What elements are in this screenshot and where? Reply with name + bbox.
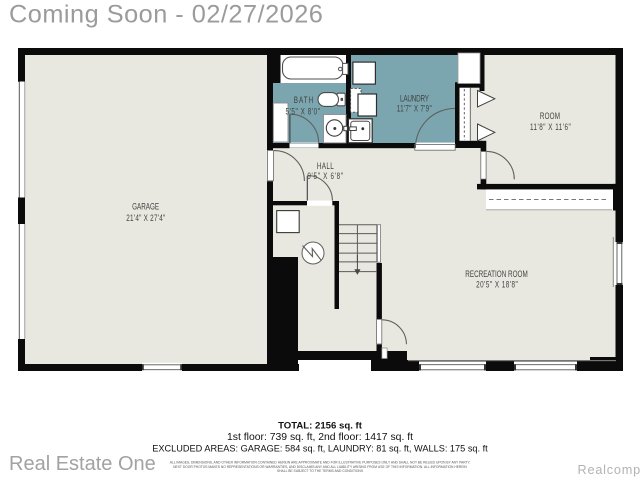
svg-text:5'5" X 8'0": 5'5" X 8'0" bbox=[285, 106, 320, 116]
svg-text:ROOM: ROOM bbox=[540, 111, 560, 121]
svg-text:LAUNDRY: LAUNDRY bbox=[400, 93, 429, 103]
svg-text:BATH: BATH bbox=[294, 95, 314, 105]
svg-text:Realcomp: Realcomp bbox=[578, 463, 640, 477]
svg-text:11'7" X 7'9": 11'7" X 7'9" bbox=[397, 103, 432, 113]
svg-text:RECREATION ROOM: RECREATION ROOM bbox=[465, 269, 527, 279]
svg-text:TOTAL: 2156 sq. ft: TOTAL: 2156 sq. ft bbox=[278, 421, 363, 432]
svg-text:SHALL BE SUBJECT TO THE TERMS: SHALL BE SUBJECT TO THE TERMS AND CONDIT… bbox=[277, 469, 364, 473]
svg-text:GARAGE: GARAGE bbox=[132, 202, 159, 212]
svg-text:9'5" X 6'8": 9'5" X 6'8" bbox=[307, 171, 344, 181]
svg-text:11'8" X 11'6": 11'8" X 11'6" bbox=[530, 122, 571, 132]
svg-text:ALL IMAGES, DIMENSIONS, AND OT: ALL IMAGES, DIMENSIONS, AND OTHER INFORM… bbox=[170, 461, 471, 465]
svg-text:21'4" X 27'4": 21'4" X 27'4" bbox=[126, 213, 165, 223]
svg-text:Coming Soon - 02/27/2026: Coming Soon - 02/27/2026 bbox=[9, 1, 323, 29]
svg-text:EXCLUDED AREAS: GARAGE: 584 sq: EXCLUDED AREAS: GARAGE: 584 sq. ft, LAUN… bbox=[152, 444, 488, 454]
svg-text:1st floor: 739 sq. ft, 2nd flo: 1st floor: 739 sq. ft, 2nd floor: 1417 s… bbox=[227, 432, 413, 443]
svg-text:Real Estate One: Real Estate One bbox=[9, 453, 156, 475]
svg-text:20'5" X 18'8": 20'5" X 18'8" bbox=[476, 279, 518, 289]
svg-text:HALL: HALL bbox=[317, 161, 334, 171]
